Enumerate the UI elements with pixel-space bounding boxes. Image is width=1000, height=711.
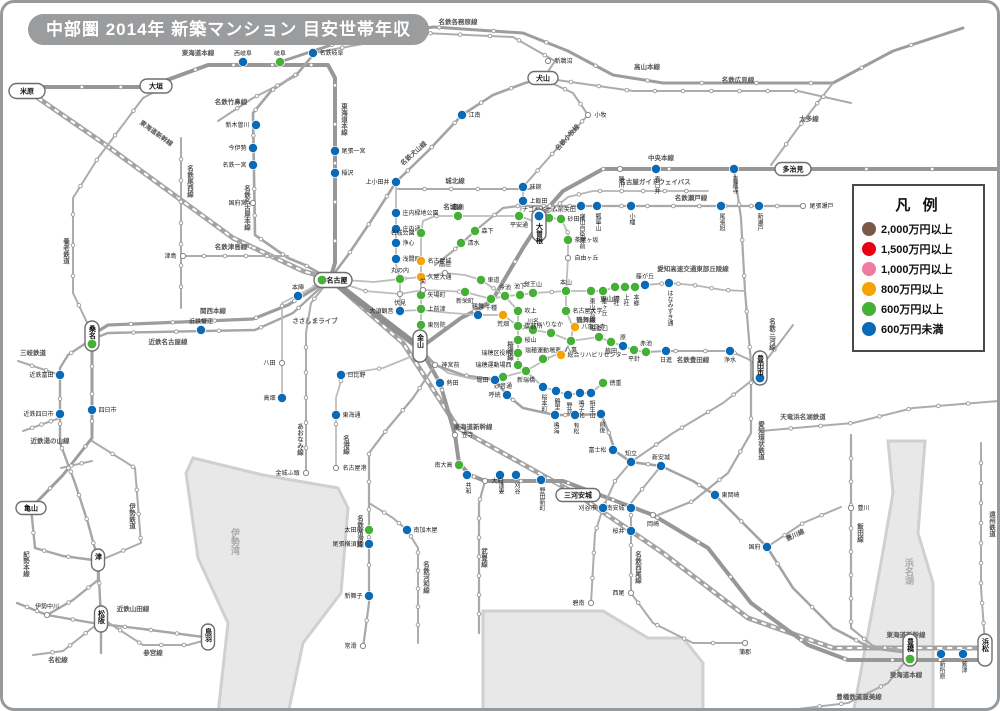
minor-station-dot: [397, 521, 401, 525]
station-dot: [308, 48, 317, 57]
minor-station-dot: [244, 254, 248, 258]
station-dot: [563, 235, 572, 244]
minor-station-dot: [69, 351, 73, 355]
minor-station-dot: [383, 511, 387, 515]
minor-station-dot: [341, 46, 345, 50]
station-label: 豊川: [858, 504, 870, 512]
minor-station-dot: [776, 562, 780, 566]
station-label: 新鵜沼: [555, 57, 573, 65]
station-label: 江南: [469, 111, 481, 119]
station-label: 小幡: [628, 212, 635, 226]
legend-item-label: 800万円以上: [881, 281, 943, 297]
minor-station-dot: [862, 637, 866, 641]
minor-station-dot: [213, 319, 217, 323]
minor-station-dot: [810, 605, 814, 609]
minor-station-dot: [333, 84, 337, 88]
line-label: 愛知高速交通東部丘陵線: [657, 264, 729, 273]
minor-station-dot: [550, 290, 554, 294]
water-label: 伊勢湾: [230, 527, 241, 556]
line-label: 遠州鉄道: [988, 510, 997, 539]
line-label: 東海道新幹線: [138, 118, 175, 148]
station-dot: [330, 168, 339, 177]
minor-station-dot: [383, 430, 387, 434]
minor-station-dot: [636, 601, 640, 605]
station-label: 尾張旭: [718, 213, 725, 232]
station-label: 東海通: [343, 411, 361, 419]
line-label: 飯田線: [856, 522, 865, 544]
station-label: 鷲津: [960, 660, 967, 674]
station-label: 新所原: [938, 660, 945, 679]
minor-station-dot: [625, 88, 629, 92]
minor-station-dot: [69, 470, 73, 474]
station-dot: [725, 346, 734, 355]
minor-station-dot: [849, 550, 853, 554]
station-label: 近鉄四日市: [23, 410, 53, 418]
station-dot: [729, 164, 738, 173]
station-label: 砂田橋: [568, 215, 586, 223]
station-label: 黒川: [452, 205, 464, 212]
minor-station-dot: [179, 285, 183, 289]
minor-station-dot: [766, 89, 770, 93]
minor-station-dot: [849, 620, 853, 624]
rail-line-suzuka-line: [61, 461, 92, 468]
minor-station-dot: [309, 63, 313, 67]
station-dot: [180, 253, 185, 258]
station-label: 今池: [499, 284, 511, 292]
station-label: 近鉄富田: [29, 371, 53, 379]
minor-station-dot: [364, 289, 368, 293]
minor-station-dot: [640, 487, 644, 491]
minor-station-dot: [979, 461, 983, 465]
minor-station-dot: [891, 658, 895, 662]
minor-station-dot: [718, 478, 722, 482]
rail-line-aichi-loop-line: [658, 169, 751, 515]
station-dot: [482, 478, 487, 483]
minor-station-dot: [293, 73, 297, 77]
station-dot: [416, 256, 425, 265]
station-dot: [364, 591, 373, 600]
minor-station-dot: [646, 462, 650, 466]
minor-station-dot: [304, 396, 308, 400]
station-dot: [656, 461, 665, 470]
line-label: 伊勢鉄道: [128, 502, 137, 531]
station-dot: [528, 288, 537, 297]
station-label: 東別院: [428, 321, 446, 329]
minor-station-dot: [132, 331, 136, 335]
minor-station-dot: [849, 573, 853, 577]
station-label: 本陣: [292, 284, 304, 292]
minor-station-dot: [809, 81, 813, 85]
station-dot: [848, 505, 853, 510]
minor-station-dot: [437, 26, 441, 30]
station-label: 上飯田: [530, 197, 548, 205]
station-label: 高岳: [439, 261, 451, 269]
line-label: 中央本線: [648, 153, 675, 162]
minor-station-dot: [849, 597, 853, 601]
station-dot: [641, 347, 650, 356]
minor-station-dot: [48, 487, 52, 491]
line-label: 養老鉄道: [62, 237, 71, 265]
station-label: 味鋺: [530, 183, 542, 191]
minor-station-dot: [129, 322, 133, 326]
minor-station-dot: [175, 632, 179, 636]
minor-station-dot: [171, 321, 175, 325]
minor-station-dot: [737, 203, 741, 207]
station-dot: [395, 306, 404, 315]
station-label: 南加木屋: [414, 526, 438, 534]
minor-station-dot: [566, 230, 570, 234]
minor-station-dot: [738, 89, 742, 93]
line-label: 名鉄河和線: [422, 560, 431, 595]
minor-station-dot: [654, 443, 658, 447]
station-label: 瑞穂運動場西: [475, 361, 511, 369]
rail-line-meitetsu-seto-line: [435, 206, 803, 265]
minor-station-dot: [49, 419, 53, 423]
minor-station-dot: [249, 244, 253, 248]
station-label: 日進: [660, 356, 672, 364]
station-label: 清水: [468, 239, 480, 247]
minor-station-dot: [60, 446, 64, 450]
minor-station-dot: [90, 419, 94, 423]
station-dot: [617, 166, 622, 171]
minor-station-dot: [179, 200, 183, 204]
station-dot: [588, 600, 593, 605]
minor-station-dot: [367, 223, 371, 227]
minor-station-dot: [492, 287, 496, 291]
minor-station-dot: [179, 221, 183, 225]
station-dot: [513, 348, 522, 357]
minor-station-dot: [477, 536, 481, 540]
line-label: 東海道本線: [182, 48, 215, 57]
line-label: 近鉄湯の山線: [31, 436, 71, 445]
minor-station-dot: [71, 213, 75, 217]
hub-station-label: 犬山: [536, 74, 550, 83]
station-label: 南安城: [606, 504, 624, 512]
minor-station-dot: [477, 593, 481, 597]
station-dot: [511, 470, 520, 479]
station-label: 上小田井: [365, 178, 389, 186]
minor-station-dot: [979, 481, 983, 485]
line-label: 名港線: [342, 434, 350, 456]
line-label: 名鉄西尾線: [634, 550, 643, 585]
minor-station-dot: [429, 32, 433, 36]
station-dot: [586, 388, 595, 397]
minor-station-dot: [367, 452, 371, 456]
legend-dot-icon: [862, 302, 876, 316]
station-label: 自由ヶ丘: [575, 254, 599, 262]
station-label: 伏見: [394, 299, 406, 307]
minor-station-dot: [742, 274, 746, 278]
station-label: 矢場町: [428, 291, 446, 299]
station-dot: [391, 177, 400, 186]
station-dot: [44, 612, 49, 617]
minor-station-dot: [90, 365, 94, 369]
station-dot: [293, 291, 302, 300]
station-dot: [592, 201, 601, 210]
minor-station-dot: [680, 426, 684, 430]
station-dot: [762, 542, 771, 551]
station-label: 新木曽川: [225, 121, 249, 129]
minor-station-dot: [879, 685, 883, 689]
line-label: 名鉄豊田線: [677, 355, 710, 364]
line-label: 参宮線: [143, 648, 163, 657]
station-label: 津島: [164, 252, 176, 260]
station-dot: [650, 512, 655, 517]
minor-station-dot: [749, 381, 753, 385]
minor-station-dot: [726, 288, 730, 292]
minor-station-dot: [784, 142, 788, 146]
legend-dot-icon: [862, 262, 876, 276]
station-dot: [395, 274, 404, 283]
minor-station-dot: [58, 397, 62, 401]
minor-station-dot: [710, 89, 714, 93]
legend-item-label: 600万円未満: [881, 321, 943, 337]
minor-station-dot: [909, 43, 913, 47]
minor-station-dot: [42, 549, 46, 553]
minor-station-dot: [580, 120, 584, 124]
station-dot: [521, 366, 530, 375]
minor-station-dot: [656, 623, 660, 627]
legend-dot-icon: [862, 322, 876, 336]
station-dot: [630, 282, 639, 291]
minor-station-dot: [592, 551, 596, 555]
minor-station-dot: [131, 465, 135, 469]
minor-station-dot: [558, 202, 562, 206]
station-dot: [513, 335, 522, 344]
minor-station-dot: [401, 408, 405, 412]
legend-dot-icon: [862, 222, 876, 236]
station-dot: [275, 57, 284, 66]
minor-station-dot: [182, 643, 186, 647]
station-label: 本郷: [632, 293, 639, 307]
minor-station-dot: [697, 483, 701, 487]
station-dot: [538, 354, 547, 363]
station-dot: [277, 393, 286, 402]
station-label: 庄内緑地公園: [403, 209, 439, 217]
station-dot: [515, 290, 524, 299]
water-label: 浜名湖: [904, 557, 914, 586]
minor-station-dot: [333, 239, 337, 243]
minor-station-dot: [745, 310, 749, 314]
rail-line-meitetsu-toyokawa-line: [767, 507, 841, 547]
legend-dot-icon: [862, 282, 876, 296]
minor-station-dot: [700, 81, 704, 85]
station-dot: [416, 320, 425, 329]
station-label: 尾張一宮: [342, 147, 366, 155]
station-label: 尾張瀬戸: [810, 202, 834, 210]
station-dot: [402, 525, 411, 534]
minor-station-dot: [449, 187, 453, 191]
minor-station-dot: [843, 657, 847, 661]
minor-station-dot: [937, 404, 941, 408]
minor-station-dot: [297, 306, 301, 310]
station-label: 太田川: [344, 526, 362, 534]
minor-station-dot: [253, 214, 257, 218]
minor-station-dot: [348, 250, 352, 254]
minor-station-dot: [672, 204, 676, 208]
line-label: 紀勢本線: [22, 550, 30, 579]
minor-station-dot: [839, 702, 843, 706]
station-label: 名鉄一宮: [222, 161, 246, 169]
minor-station-dot: [594, 64, 598, 68]
minor-station-dot: [119, 85, 123, 89]
minor-station-dot: [477, 517, 481, 521]
minor-station-dot: [440, 388, 444, 392]
station-dot: [661, 346, 670, 355]
minor-station-dot: [67, 601, 71, 605]
line-label: 名鉄竹鼻線: [215, 97, 248, 106]
station-dot: [640, 280, 649, 289]
minor-station-dot: [406, 169, 410, 173]
line-label: 武豊線: [480, 547, 488, 569]
minor-station-dot: [660, 282, 664, 286]
minor-station-dot: [77, 493, 81, 497]
minor-station-dot: [90, 392, 94, 396]
minor-station-dot: [739, 450, 743, 454]
station-label: 栄: [420, 278, 426, 286]
station-dot: [486, 294, 495, 303]
station-label: 徳重: [610, 379, 622, 387]
station-dot: [570, 322, 579, 331]
minor-station-dot: [488, 34, 492, 38]
minor-station-dot: [729, 575, 733, 579]
minor-station-dot: [430, 145, 434, 149]
minor-station-dot: [32, 531, 36, 535]
station-label: 総合リハビリセンター: [568, 351, 628, 359]
minor-station-dot: [674, 349, 678, 353]
station-label: 鶴里: [553, 397, 560, 410]
station-label: 岡崎: [647, 520, 659, 528]
minor-station-dot: [367, 480, 371, 484]
minor-station-dot: [629, 513, 633, 517]
minor-station-dot: [84, 631, 88, 635]
minor-station-dot: [418, 386, 422, 390]
station-dot: [330, 146, 339, 155]
minor-station-dot: [174, 330, 178, 334]
minor-station-dot: [223, 254, 227, 258]
rail-line-meitetsu-main-north: [253, 55, 330, 279]
minor-station-dot: [25, 605, 29, 609]
water-area-mikawa-bay: [483, 611, 703, 711]
minor-station-dot: [304, 446, 308, 450]
station-dot: [391, 238, 400, 247]
station-dot: [248, 160, 257, 169]
minor-station-dot: [740, 238, 744, 242]
station-dot: [462, 470, 471, 479]
minor-station-dot: [519, 479, 523, 483]
legend-item: 1,500万円以上: [862, 241, 975, 257]
hub-station-label: 亀山: [23, 504, 38, 513]
station-label: いりなか: [539, 322, 563, 329]
line-label: 近鉄山田線: [117, 604, 150, 613]
line-label: 名鉄広見線: [722, 75, 755, 84]
station-dot: [490, 375, 499, 384]
minor-station-dot: [217, 329, 221, 333]
hub-station-label: 豊田市: [757, 354, 765, 377]
minor-station-dot: [367, 563, 371, 567]
line-label: 天竜浜名湖鉄道: [780, 412, 826, 421]
station-label: 東岡崎: [722, 491, 740, 499]
minor-station-dot: [855, 638, 859, 642]
minor-station-dot: [479, 101, 483, 105]
station-dot: [331, 410, 340, 419]
minor-station-dot: [67, 555, 71, 559]
station-label: 上社: [622, 293, 629, 307]
minor-station-dot: [697, 204, 701, 208]
line-label: 高山本線: [634, 62, 661, 71]
minor-station-dot: [591, 576, 595, 580]
line-label: 関西本線: [200, 306, 227, 315]
station-label: 四日市: [99, 406, 117, 414]
minor-station-dot: [333, 122, 337, 126]
minor-station-dot: [30, 426, 34, 430]
minor-station-dot: [333, 200, 337, 204]
hub-station-label: 大垣: [149, 82, 163, 91]
station-dot: [561, 306, 570, 315]
minor-station-dot: [58, 422, 62, 426]
station-dot: [416, 304, 425, 313]
minor-station-dot: [465, 374, 469, 378]
station-dot: [629, 345, 638, 354]
minor-station-dot: [849, 457, 853, 461]
rail-line-meitetsu-takehana-line: [218, 75, 298, 121]
station-dot: [710, 490, 719, 499]
legend-item-label: 600万円以上: [881, 301, 943, 317]
minor-station-dot: [682, 637, 686, 641]
station-dot: [360, 643, 365, 648]
minor-station-dot: [629, 543, 633, 547]
station-dot: [391, 208, 400, 217]
station-label: 上前津: [428, 305, 446, 313]
minor-station-dot: [111, 452, 115, 456]
minor-station-dot: [800, 522, 804, 526]
station-dot: [238, 57, 247, 66]
minor-station-dot: [815, 101, 819, 105]
station-dot: [610, 282, 619, 291]
minor-station-dot: [334, 422, 338, 426]
station-dot: [416, 228, 425, 237]
minor-station-dot: [132, 109, 136, 113]
station-label: 南大高: [434, 461, 452, 469]
station-dot: [536, 475, 545, 484]
minor-station-dot: [265, 254, 269, 258]
minor-station-dot: [71, 243, 75, 247]
minor-station-dot: [689, 500, 693, 504]
minor-station-dot: [513, 260, 517, 264]
station-dot: [596, 409, 605, 418]
minor-station-dot: [271, 63, 275, 67]
minor-station-dot: [748, 345, 752, 349]
minor-station-dot: [367, 508, 371, 512]
minor-station-dot: [71, 274, 75, 278]
station-label: 大須観音: [369, 307, 393, 315]
station-dot: [606, 337, 615, 346]
station-dot: [456, 238, 465, 247]
station-label: 呼続: [488, 391, 500, 399]
minor-station-dot: [259, 326, 263, 330]
minor-station-dot: [775, 204, 779, 208]
station-label: 近鉄蟹江: [189, 318, 213, 326]
minor-station-dot: [202, 254, 206, 258]
minor-station-dot: [536, 169, 540, 173]
minor-station-dot: [123, 625, 127, 629]
station-label: 大府: [492, 477, 504, 485]
station-dot: [476, 275, 485, 284]
minor-station-dot: [613, 479, 617, 483]
minor-station-dot: [472, 475, 476, 479]
minor-station-dot: [271, 88, 275, 92]
minor-station-dot: [860, 66, 864, 70]
